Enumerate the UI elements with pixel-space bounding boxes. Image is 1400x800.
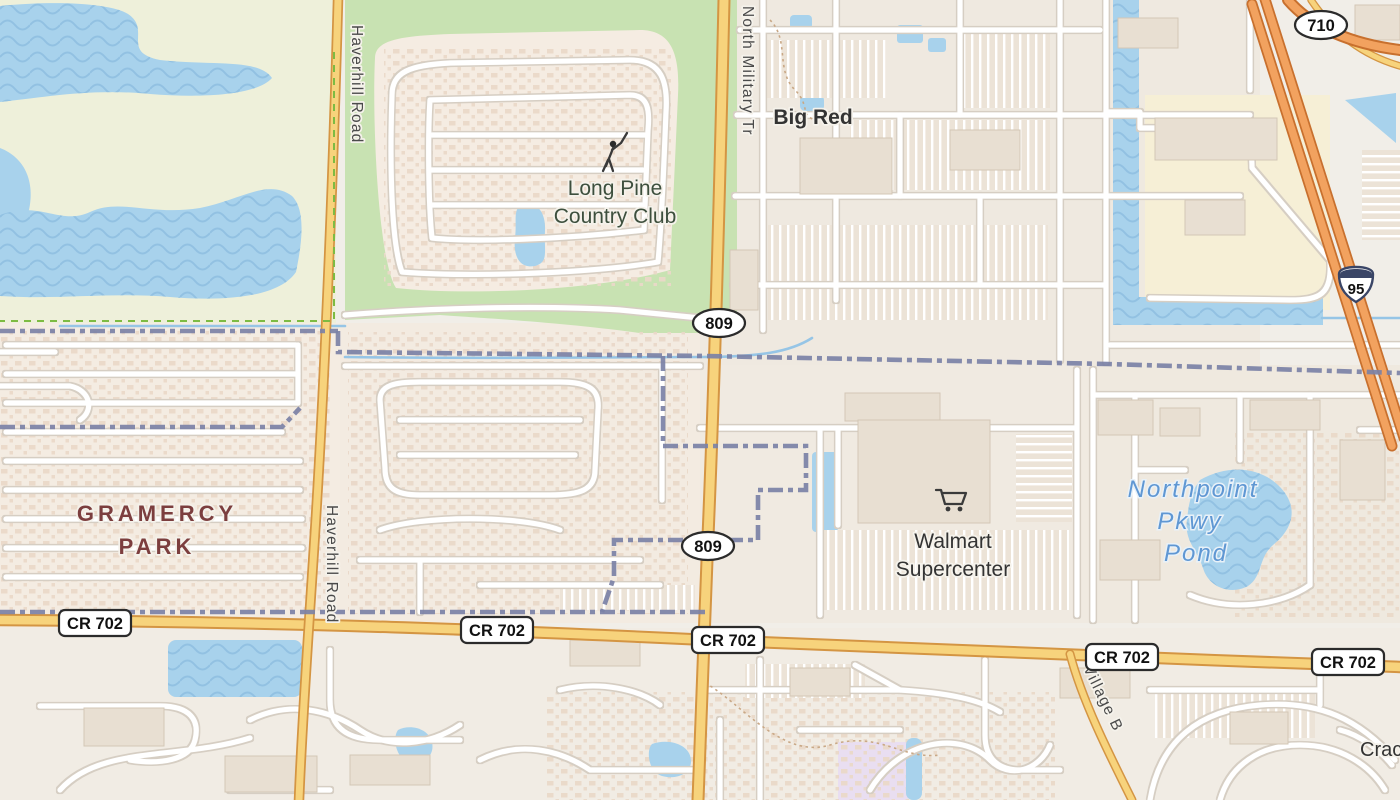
- svg-text:CR 702: CR 702: [469, 622, 525, 640]
- label-long-pine-2: Country Club: [554, 205, 677, 228]
- shield-cr702-2: CR 702: [461, 617, 533, 643]
- svg-text:CR 702: CR 702: [1320, 654, 1376, 672]
- label-walmart-1: Walmart: [914, 530, 992, 553]
- label-gramercy-2: PARK: [119, 534, 196, 559]
- shield-cr702-5: CR 702: [1312, 649, 1384, 675]
- label-military-trail: North Military Tr: [739, 6, 756, 136]
- svg-text:710: 710: [1307, 17, 1335, 35]
- label-cracker: Crac: [1360, 739, 1400, 761]
- svg-text:CR 702: CR 702: [67, 615, 123, 633]
- label-northpoint-2: Pkwy: [1157, 508, 1222, 535]
- label-walmart-2: Supercenter: [896, 558, 1010, 581]
- svg-text:95: 95: [1348, 281, 1365, 298]
- label-northpoint-3: Pond: [1164, 540, 1228, 567]
- shield-809-1: 809: [693, 309, 745, 337]
- shield-710: 710: [1295, 11, 1347, 39]
- golf-pond: [515, 204, 545, 267]
- pond-rect-military: [812, 452, 838, 532]
- label-long-pine-1: Long Pine: [568, 177, 663, 200]
- map-svg: Big Red Long Pine Country Club GRAMERCY …: [0, 0, 1400, 800]
- svg-text:CR 702: CR 702: [1094, 649, 1150, 667]
- svg-text:809: 809: [694, 538, 722, 556]
- shield-809-2: 809: [682, 532, 734, 560]
- label-big-red: Big Red: [773, 106, 852, 129]
- shield-cr702-1: CR 702: [59, 610, 131, 636]
- shield-cr702-3: CR 702: [692, 627, 764, 653]
- label-haverhill-top: Haverhill Road: [348, 25, 365, 143]
- label-northpoint-1: Northpoint: [1128, 476, 1259, 503]
- svg-text:CR 702: CR 702: [700, 632, 756, 650]
- shield-cr702-4: CR 702: [1086, 644, 1158, 670]
- label-gramercy-1: GRAMERCY: [77, 501, 237, 526]
- label-haverhill-bottom: Haverhill Road: [323, 505, 340, 623]
- map-canvas[interactable]: Big Red Long Pine Country Club GRAMERCY …: [0, 0, 1400, 800]
- walmart-building: [858, 420, 990, 523]
- svg-text:809: 809: [705, 315, 733, 333]
